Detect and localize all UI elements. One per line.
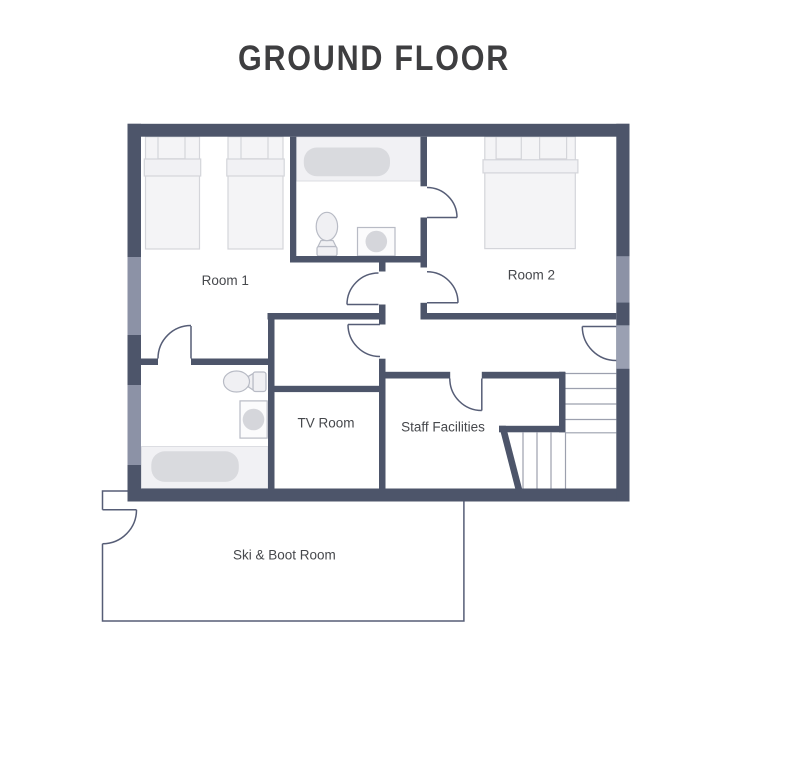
svg-text:TV Room: TV Room xyxy=(297,416,354,431)
svg-text:Room 1: Room 1 xyxy=(202,273,249,288)
svg-text:GROUND FLOOR: GROUND FLOOR xyxy=(238,39,510,78)
svg-text:Ski & Boot Room: Ski & Boot Room xyxy=(233,548,336,563)
svg-text:Room 2: Room 2 xyxy=(508,267,555,282)
svg-text:Staff Facilities: Staff Facilities xyxy=(401,420,485,435)
